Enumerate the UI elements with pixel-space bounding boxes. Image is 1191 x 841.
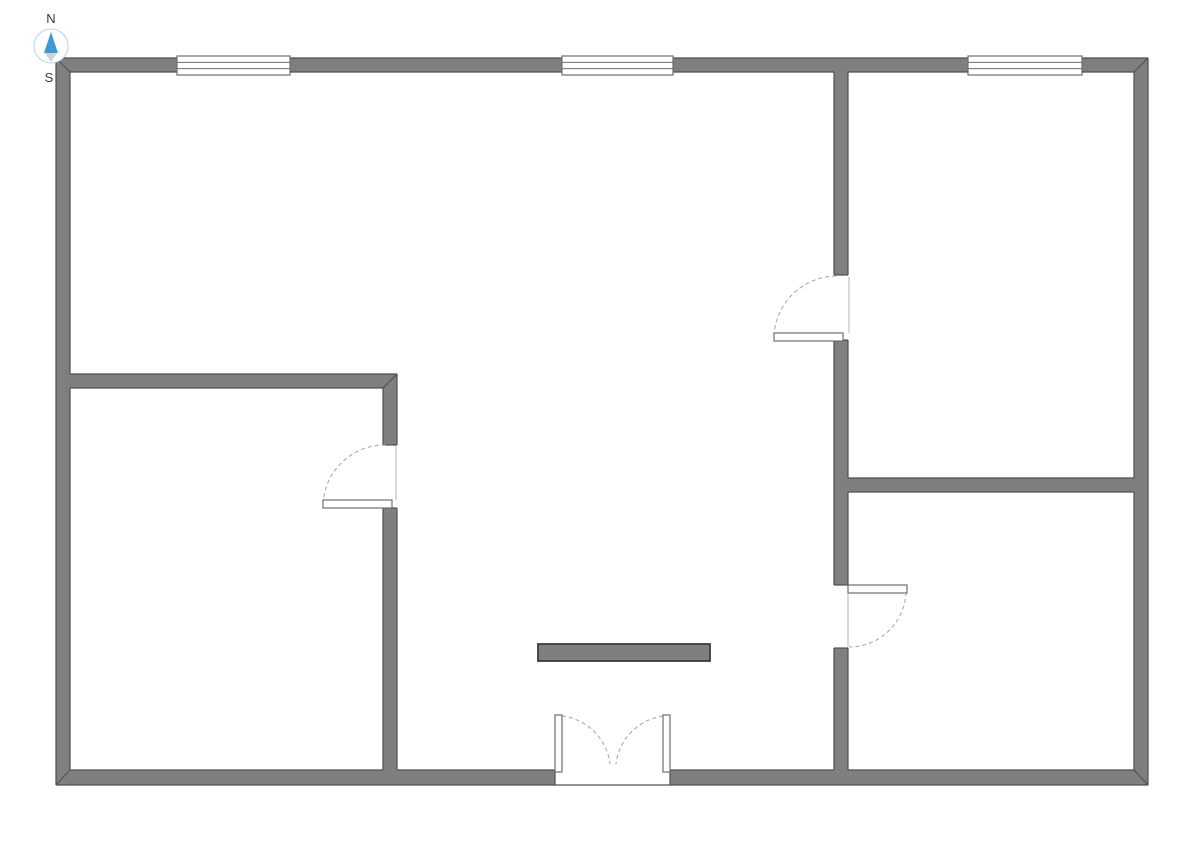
compass-rose: N S (16, 6, 86, 92)
interior-wall-vertical-right-seg3 (834, 648, 848, 770)
door-swing-arc-upper-right-room (774, 276, 837, 336)
double-door-leaf-right (663, 715, 670, 772)
interior-wall-vertical-left-lower (383, 508, 397, 770)
outer-wall-left (56, 58, 70, 785)
outer-wall-right (1134, 58, 1148, 785)
window-top-right (968, 56, 1082, 75)
floor-plan-canvas: N S (0, 0, 1191, 841)
outer-wall-bottom-left (56, 770, 555, 785)
door-leaf-lower-left-room (323, 500, 392, 508)
floor-plan-drawing (0, 0, 1191, 841)
door-swing-arc-lower-right-room (849, 592, 906, 647)
window-top-left (177, 56, 290, 75)
interior-wall-horizontal-left (70, 374, 397, 388)
door-swing-arc-lower-left-room (323, 445, 387, 504)
double-door-swing-arc-left (562, 716, 610, 764)
interior-wall-vertical-left-upper (383, 374, 397, 445)
compass-south-label: S (45, 70, 54, 85)
freestanding-wall-segment (538, 644, 710, 661)
compass-north-label: N (46, 11, 55, 26)
window-top-middle (562, 56, 673, 75)
door-leaf-upper-right-room (774, 333, 843, 341)
interior-wall-vertical-right-seg1 (834, 72, 848, 275)
outer-wall-bottom-right (670, 770, 1148, 785)
interior-wall-vertical-right-seg2 (834, 340, 848, 585)
door-leaf-lower-right-room (848, 585, 907, 593)
double-door-leaf-left (555, 715, 562, 772)
double-door-swing-arc-right (616, 716, 663, 764)
interior-wall-horizontal-right (848, 478, 1134, 492)
